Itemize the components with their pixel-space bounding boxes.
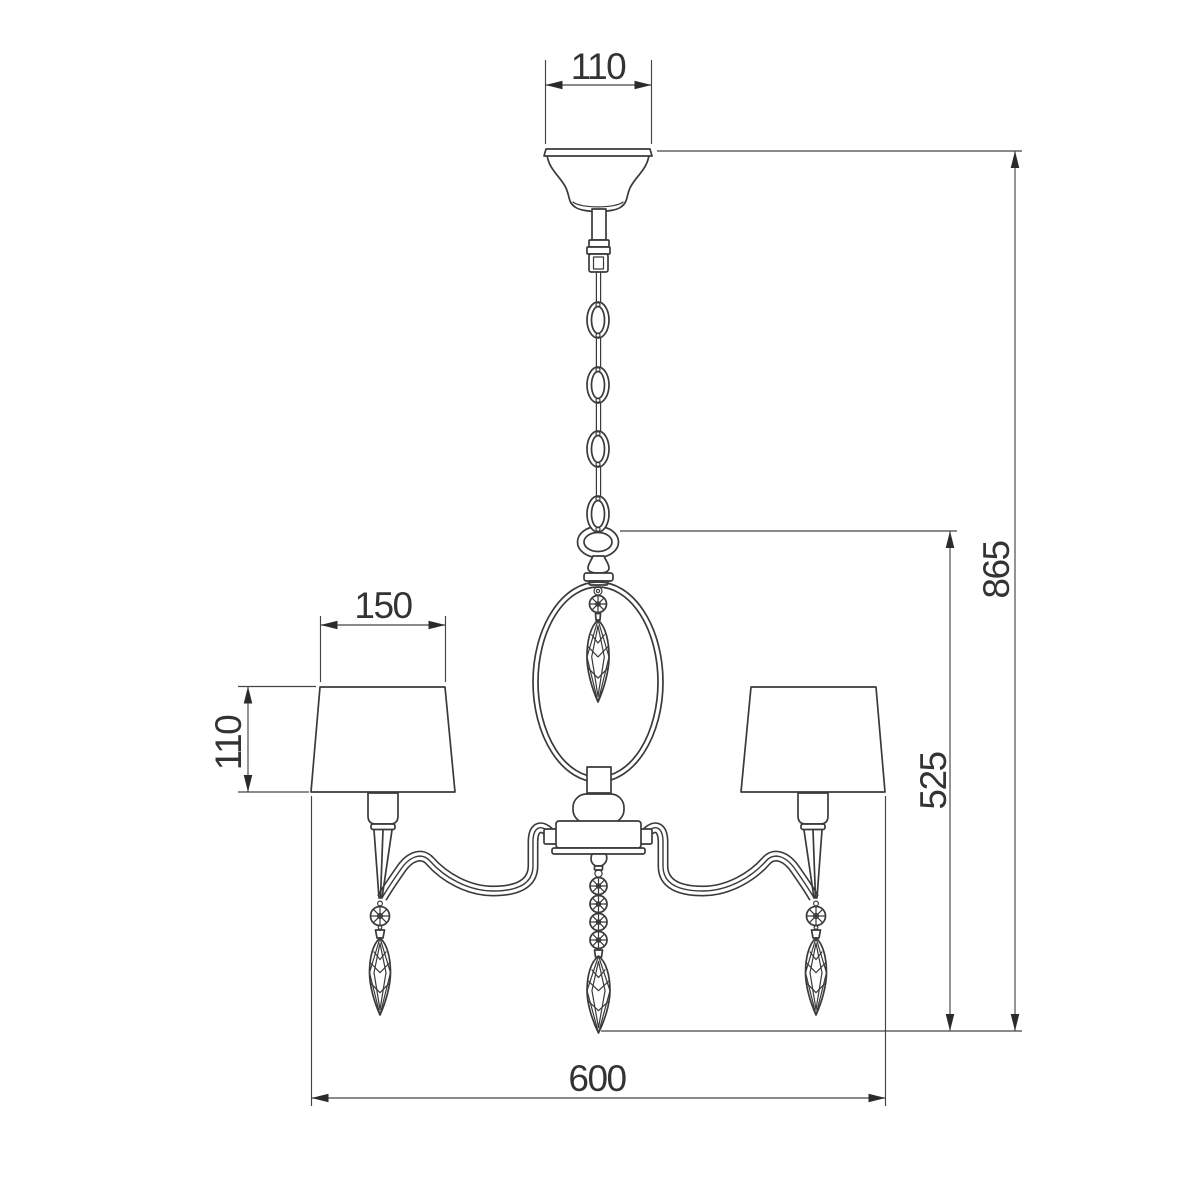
chain-link (587, 302, 609, 338)
dimension-canopy-width: 110 (546, 46, 652, 144)
center-frame-crystal-drop (587, 620, 609, 702)
right-arm-assembly (646, 687, 885, 1015)
chain-link (587, 431, 609, 467)
dim-canopy-width-label: 110 (571, 46, 626, 87)
canopy-stem (592, 209, 606, 240)
arrowhead-down-icon (1011, 1014, 1020, 1031)
canopy-bell (547, 155, 649, 212)
arrowhead-right-icon (869, 1094, 886, 1103)
arrowhead-right-icon (635, 81, 652, 90)
chain-link (587, 367, 609, 403)
finial (584, 556, 613, 585)
crystal-bead (590, 596, 607, 613)
arrowhead-up-icon (244, 687, 253, 704)
dim-body-height-label: 525 (913, 751, 954, 809)
dim-shade-width-label: 150 (354, 585, 412, 626)
arrowhead-right-icon (429, 621, 446, 630)
dim-overall-height-label: 865 (976, 540, 1017, 598)
chain-link (587, 496, 609, 532)
center-crystal-drop (587, 956, 610, 1033)
arrowhead-left-icon (546, 81, 563, 90)
oval-frame (533, 582, 663, 823)
crystal-bead (590, 878, 607, 895)
center-hub (544, 821, 652, 854)
frame-base-puck (573, 794, 624, 823)
arrowhead-up-icon (946, 531, 955, 548)
crystal-bead (590, 914, 607, 931)
arrowhead-down-icon (244, 775, 253, 792)
crystal-bead (590, 896, 607, 913)
dim-shade-height-label: 110 (208, 715, 249, 770)
arrowhead-left-icon (321, 621, 338, 630)
dim-overall-width-label: 600 (568, 1058, 626, 1099)
arrowhead-left-icon (312, 1094, 329, 1103)
drawing-canvas: 110 150 110 600 525 865 (0, 0, 1200, 1200)
frame-base-block (587, 767, 611, 793)
ceiling-canopy (544, 149, 652, 272)
dimension-shade-width: 150 (321, 585, 446, 682)
arrowhead-up-icon (1011, 151, 1020, 168)
hub-body (556, 821, 641, 848)
canopy-plate (544, 149, 652, 156)
crystal-bead (590, 932, 607, 949)
hub-base-plate (552, 848, 645, 854)
left-arm-assembly (311, 687, 550, 1015)
chandelier-dimension-drawing: 110 150 110 600 525 865 (0, 0, 1200, 1200)
dimension-shade-height: 110 (208, 687, 316, 793)
arrowhead-down-icon (946, 1014, 955, 1031)
hub-left-nub (544, 829, 557, 844)
hanging-chain (578, 272, 619, 558)
center-crystal-string (587, 854, 610, 1033)
